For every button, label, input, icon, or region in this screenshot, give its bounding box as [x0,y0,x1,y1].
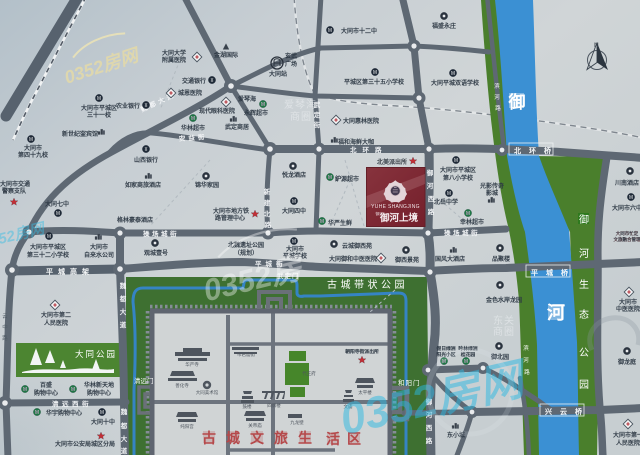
svg-text:川南酒店: 川南酒店 [615,179,639,187]
svg-text:纯阳宫: 纯阳宫 [180,423,194,430]
svg-text:平城区第三十五小学校: 平城区第三十五小学校 [344,78,404,86]
svg-text:道: 道 [121,446,128,455]
svg-text:公: 公 [579,348,589,359]
svg-text:大同平城双语学校: 大同平城双语学校 [431,79,479,87]
svg-text:附属医院: 附属医院 [162,56,186,64]
svg-text:华林超市: 华林超市 [181,124,205,132]
svg-text:态: 态 [579,308,589,321]
svg-text:路: 路 [524,368,530,376]
svg-text:第三十二小学校: 第三十二小学校 [27,251,69,259]
svg-text:大同市平城区: 大同市平城区 [30,243,66,251]
svg-text:金色水岸龙园: 金色水岸龙园 [486,296,522,304]
svg-text:朝阳寺街派出所: 朝阳寺街派出所 [345,348,379,355]
svg-text:永辉超市: 永辉超市 [244,109,268,117]
svg-text:平城桥: 平城桥 [531,268,576,277]
svg-text:滨: 滨 [523,344,529,352]
svg-text:都: 都 [121,422,128,430]
svg-text:北: 北 [264,210,271,218]
svg-text:清远西街: 清远西街 [52,399,92,408]
svg-text:大同市: 大同市 [90,243,108,251]
svg-text:大同十中: 大同十中 [91,418,115,426]
svg-text:大同市平城区: 大同市平城区 [440,166,476,174]
svg-text:新世纪寍宾馆: 新世纪寍宾馆 [62,130,98,138]
svg-text:文旅融合管理: 文旅融合管理 [614,236,640,243]
svg-text:商圈: 商圈 [290,110,312,123]
svg-text:大同市十二中: 大同市十二中 [341,27,377,35]
svg-text:武定商居: 武定商居 [225,123,249,131]
svg-text:大同市六中: 大同市六中 [612,204,640,212]
svg-text:新: 新 [264,187,271,196]
svg-text:百盛: 百盛 [40,381,52,389]
svg-text:四牌楼: 四牌楼 [267,402,281,409]
svg-text:鼓楼: 鼓楼 [243,403,252,410]
svg-text:河: 河 [427,182,434,190]
svg-text:第四十九校: 第四十九校 [18,151,48,159]
svg-text:大同七中: 大同七中 [45,200,69,208]
svg-text:生: 生 [579,278,589,291]
svg-text:古城带状公园: 古城带状公园 [327,278,408,291]
svg-text:路管理中心: 路管理中心 [215,214,245,222]
svg-text:华林新天地: 华林新天地 [84,381,114,389]
svg-text:现代眼科医院: 现代眼科医院 [199,107,235,115]
svg-text:道: 道 [120,320,127,329]
svg-text:东关: 东关 [493,314,515,327]
svg-text:大同市: 大同市 [619,298,637,306]
svg-text:玄武: 玄武 [285,52,297,60]
svg-text:大同御和中医医院: 大同御和中医医院 [329,255,377,263]
svg-text:福和海鲜大咖: 福和海鲜大咖 [338,138,374,146]
svg-text:平城高架: 平城高架 [46,267,94,276]
svg-text:御: 御 [579,213,589,226]
svg-text:操场城街: 操场城街 [143,229,179,238]
svg-text:国风大酒店: 国风大酒店 [435,255,465,263]
svg-text:大同公园: 大同公园 [75,349,117,359]
svg-text:购物中心: 购物中心 [34,389,58,397]
svg-text:建: 建 [264,198,271,207]
svg-text:爱琴海: 爱琴海 [284,98,317,111]
svg-text:三十一校: 三十一校 [87,111,111,119]
svg-text:大同市: 大同市 [24,144,42,152]
svg-text:商圈: 商圈 [493,325,515,338]
svg-text:魏: 魏 [121,407,128,416]
svg-text:关帝庙: 关帝庙 [248,422,262,429]
svg-text:大同市交通: 大同市交通 [0,180,30,188]
svg-text:御龙庭: 御龙庭 [618,358,636,366]
svg-text:河: 河 [547,303,565,323]
svg-text:YUHE SHANGJING: YUHE SHANGJING [371,204,420,210]
svg-text:（规划）: （规划） [234,249,258,257]
svg-text:警察支队: 警察支队 [2,187,26,195]
svg-text:大: 大 [120,307,127,316]
svg-text:广场: 广场 [285,60,297,68]
svg-text:大同大学: 大同大学 [162,49,186,57]
svg-text:大同惠林医院: 大同惠林医院 [343,117,379,125]
svg-text:河: 河 [494,93,500,101]
svg-text:路: 路 [426,436,433,445]
svg-text:大同市公安局城区分局: 大同市公安局城区分局 [55,440,115,448]
svg-text:大同市地方铁: 大同市地方铁 [213,207,249,215]
svg-text:第八小学校: 第八小学校 [443,174,473,182]
svg-text:御河上境: 御河上境 [379,212,419,224]
svg-text:街: 街 [314,120,321,129]
svg-text:农业银行: 农业银行 [116,102,140,110]
svg-text:清远门: 清远门 [134,376,154,385]
svg-text:人民医院: 人民医院 [616,439,640,447]
svg-text:华严生鲜: 华严生鲜 [328,219,352,227]
svg-text:鈩源超市: 鈩源超市 [335,175,359,183]
svg-text:善化寺: 善化寺 [175,382,189,389]
svg-text:河: 河 [579,248,589,260]
svg-text:园: 园 [579,379,589,391]
svg-text:路: 路 [265,220,272,229]
svg-text:云城御西苑: 云城御西苑 [342,242,372,250]
svg-text:北环桥: 北环桥 [514,146,559,155]
svg-text:北岳中学: 北岳中学 [434,198,458,206]
svg-text:格林豪泰酒店: 格林豪泰酒店 [117,216,153,224]
svg-text:光影传奇: 光影传奇 [480,182,504,190]
svg-text:自来水公司: 自来水公司 [84,251,114,259]
svg-text:路: 路 [2,334,8,342]
svg-text:爱琴海: 爱琴海 [238,95,256,103]
svg-text:御: 御 [508,92,526,112]
svg-text:滨: 滨 [494,82,500,90]
svg-text:中: 中 [2,323,8,331]
svg-text:大同市平城区: 大同市平城区 [81,104,117,112]
svg-text:九龙壁: 九龙壁 [290,419,304,426]
svg-text:定: 定 [314,110,321,119]
svg-text:影城: 影城 [486,189,498,197]
svg-text:华严寺: 华严寺 [185,361,199,368]
svg-text:兴云桥: 兴云桥 [545,407,590,416]
svg-text:都: 都 [120,295,127,303]
svg-text:北环路: 北环路 [350,145,388,154]
svg-text:福盛永庄: 福盛永庄 [432,22,456,30]
svg-text:御西景苑: 御西景苑 [395,256,419,264]
svg-text:河: 河 [523,356,529,364]
svg-text:大同市第二: 大同市第二 [41,311,71,319]
svg-text:路: 路 [495,104,501,112]
svg-text:购物中心: 购物中心 [87,389,111,397]
svg-text:操场城街: 操场城街 [444,228,480,237]
svg-text:帝君庙街: 帝君庙街 [237,351,255,358]
svg-text:中医医院: 中医医院 [616,305,640,313]
svg-text:交通银行: 交通银行 [182,77,206,85]
svg-text:大同市忙定: 大同市忙定 [616,230,639,237]
svg-text:代王府: 代王府 [302,370,316,377]
svg-text:大同四中: 大同四中 [282,207,306,215]
svg-text:人民医院: 人民医院 [44,319,68,327]
svg-text:悦龙酒店: 悦龙酒店 [282,171,306,179]
svg-text:观城壹号: 观城壹号 [144,249,168,257]
svg-text:大同市第一: 大同市第一 [613,431,640,439]
svg-text:如家商旅酒店: 如家商旅酒店 [125,181,161,189]
svg-text:御: 御 [427,168,434,177]
svg-text:山西银行: 山西银行 [134,156,158,164]
svg-text:华宇购物中心: 华宇购物中心 [46,409,82,417]
svg-text:大同站: 大同站 [269,70,287,78]
svg-text:N: N [594,42,599,49]
svg-text:锦华家园: 锦华家园 [195,181,219,189]
svg-text:大同美术馆: 大同美术馆 [196,389,219,396]
svg-text:北美派出所: 北美派出所 [377,158,407,166]
svg-text:路: 路 [428,207,435,216]
svg-text:大: 大 [121,434,128,443]
svg-text:古城文旅生: 古城文旅生 [202,430,322,446]
svg-text:品聚楼: 品聚楼 [492,255,510,263]
svg-text:城恩医院: 城恩医院 [178,89,202,97]
svg-text:幸林超市: 幸林超市 [460,218,484,226]
svg-text:金湖国际: 金湖国际 [214,51,238,59]
svg-text:云: 云 [2,313,8,320]
svg-text:魏: 魏 [120,281,127,290]
